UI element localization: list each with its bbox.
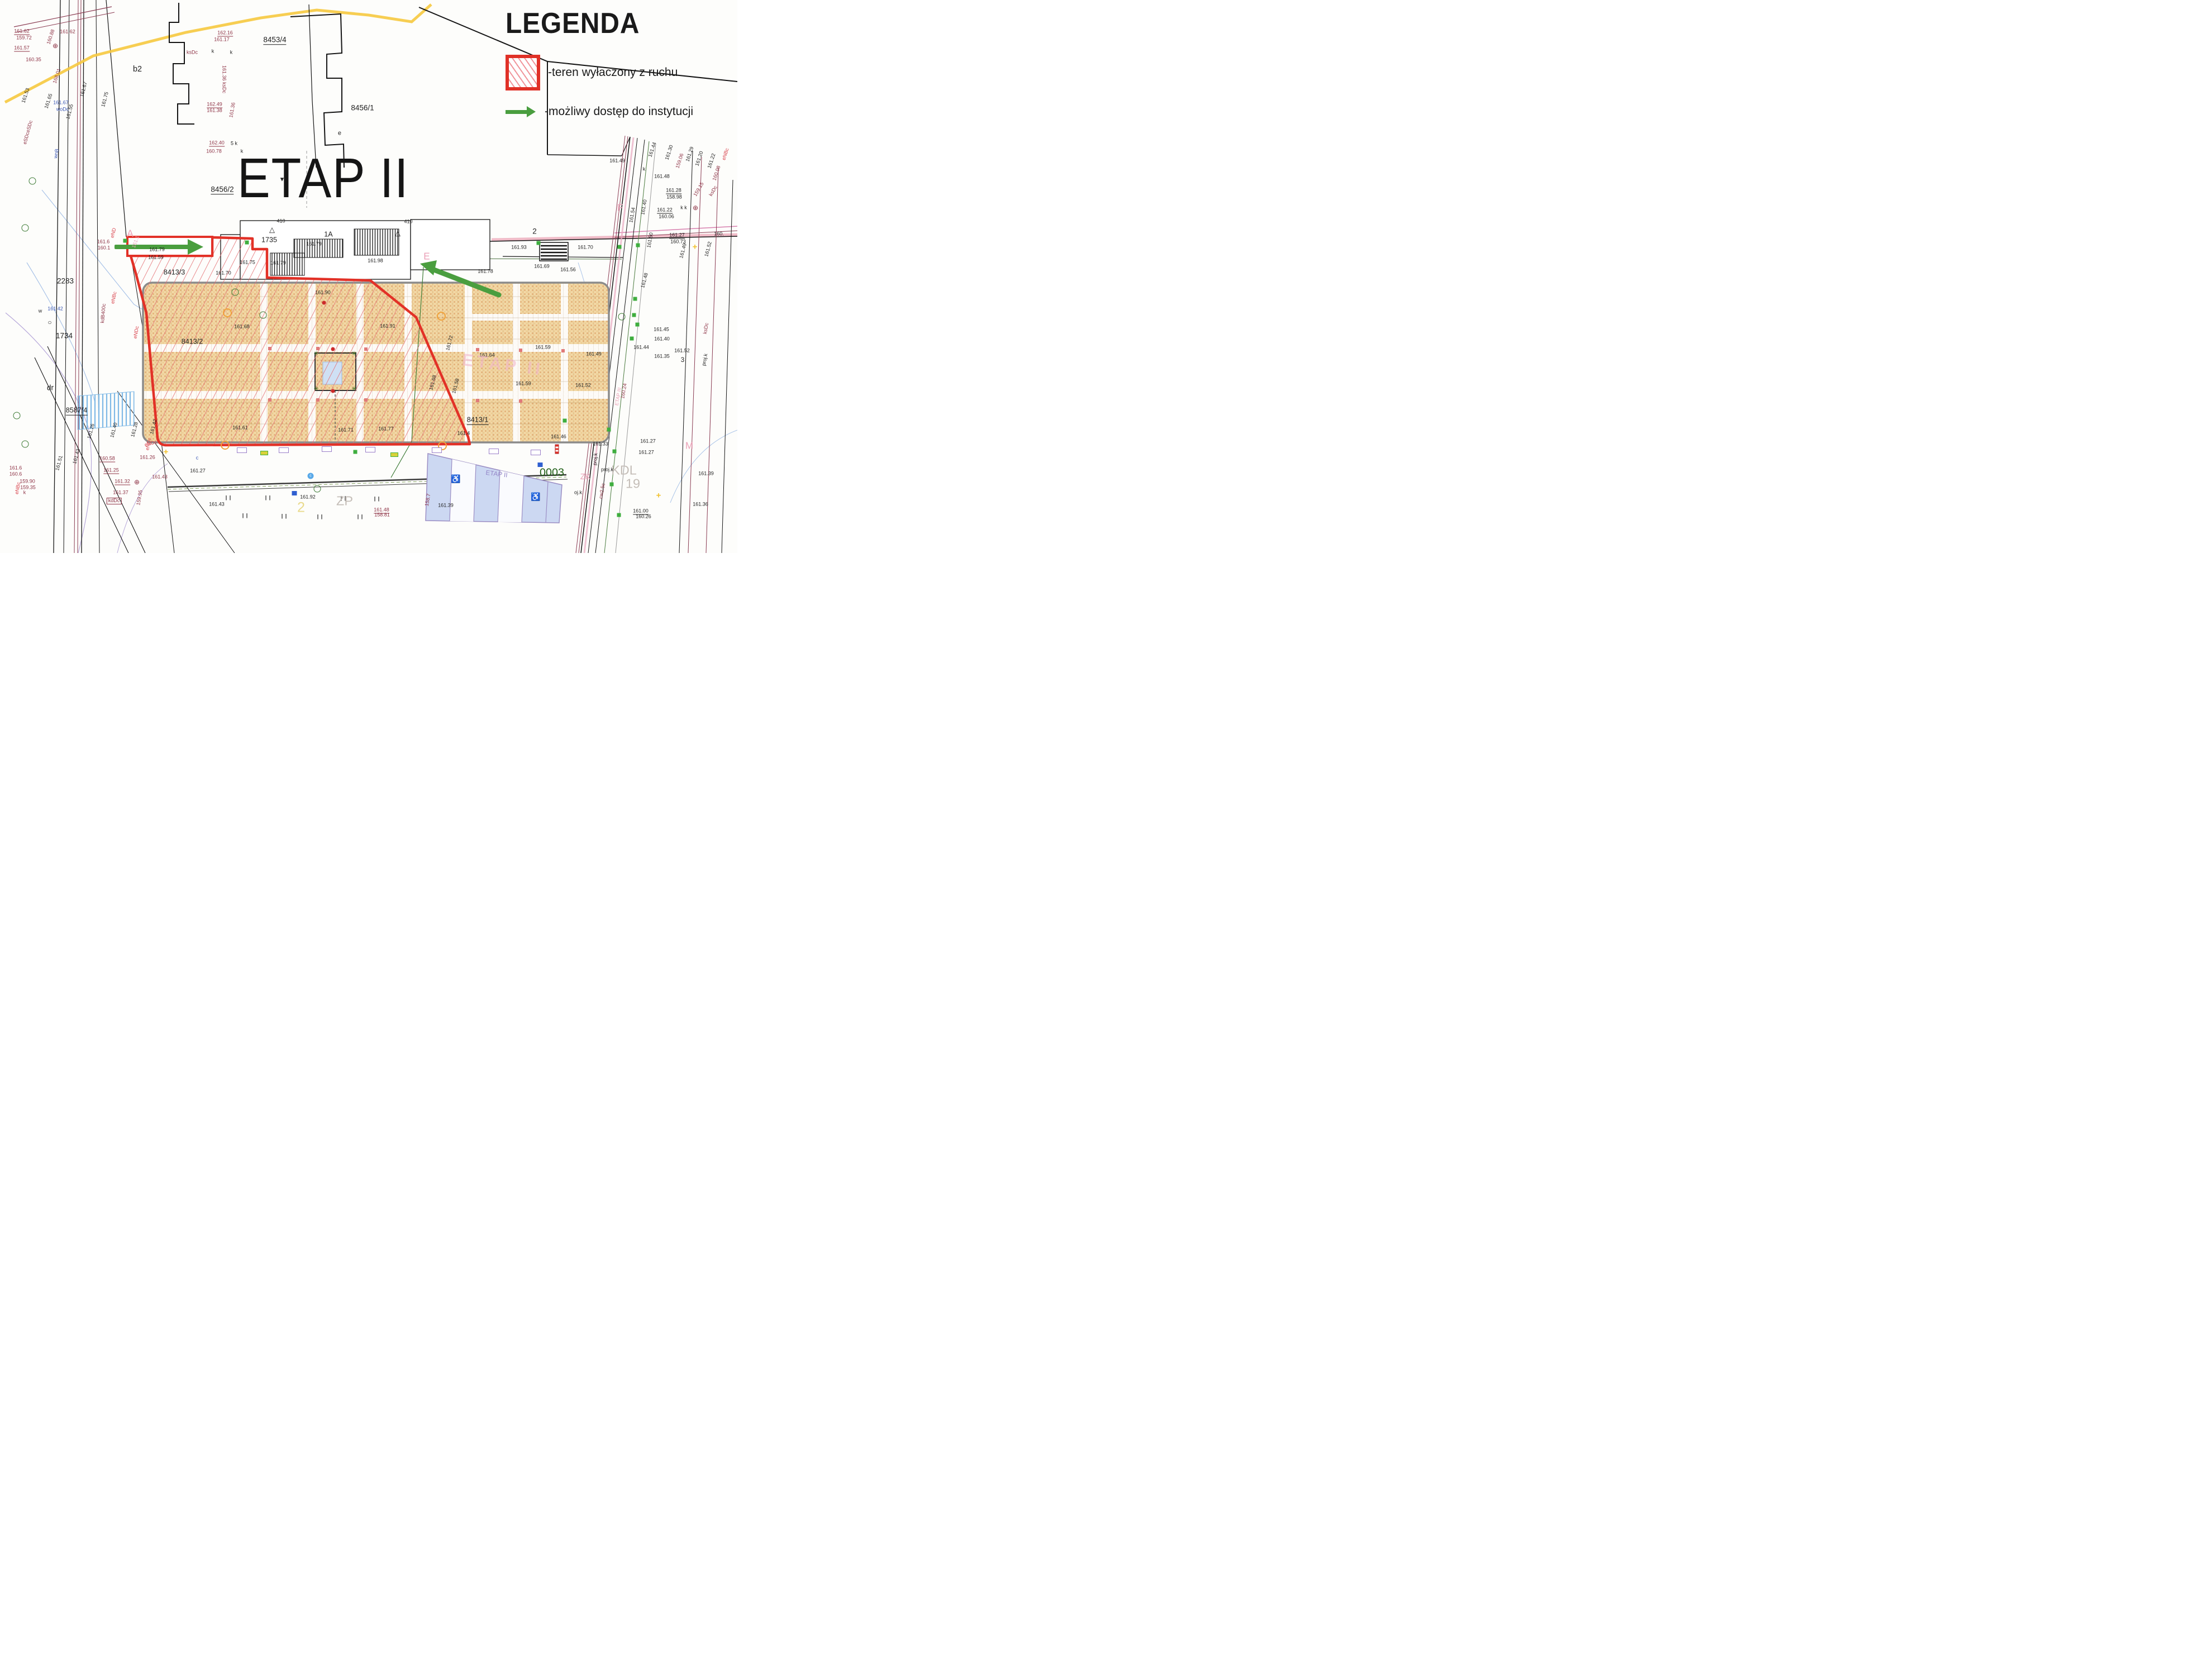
- stage-title: ETAP II: [237, 146, 409, 211]
- legend: LEGENDA -teren wyłaczony z ruchu -możliw…: [506, 7, 729, 118]
- red-hatched-area-icon: [506, 55, 540, 90]
- legend-item-label: -możliwy dostęp do instytucji: [545, 105, 693, 118]
- legend-item-excluded-area: -teren wyłaczony z ruchu: [506, 55, 729, 90]
- crosswalk-zebra: [540, 242, 568, 261]
- legend-item-access: -możliwy dostęp do instytucji: [506, 105, 729, 118]
- crosswalk-blue: [78, 392, 134, 430]
- legend-title: LEGENDA: [506, 7, 711, 40]
- green-arrow-icon: [506, 106, 537, 118]
- parking-etap2: [426, 454, 562, 523]
- legend-item-label: -teren wyłaczony z ruchu: [548, 66, 678, 79]
- site-plan: +++⊕⊕⊕○c♿♿△△▼| || || || || || || || |✳✳✳…: [0, 0, 737, 553]
